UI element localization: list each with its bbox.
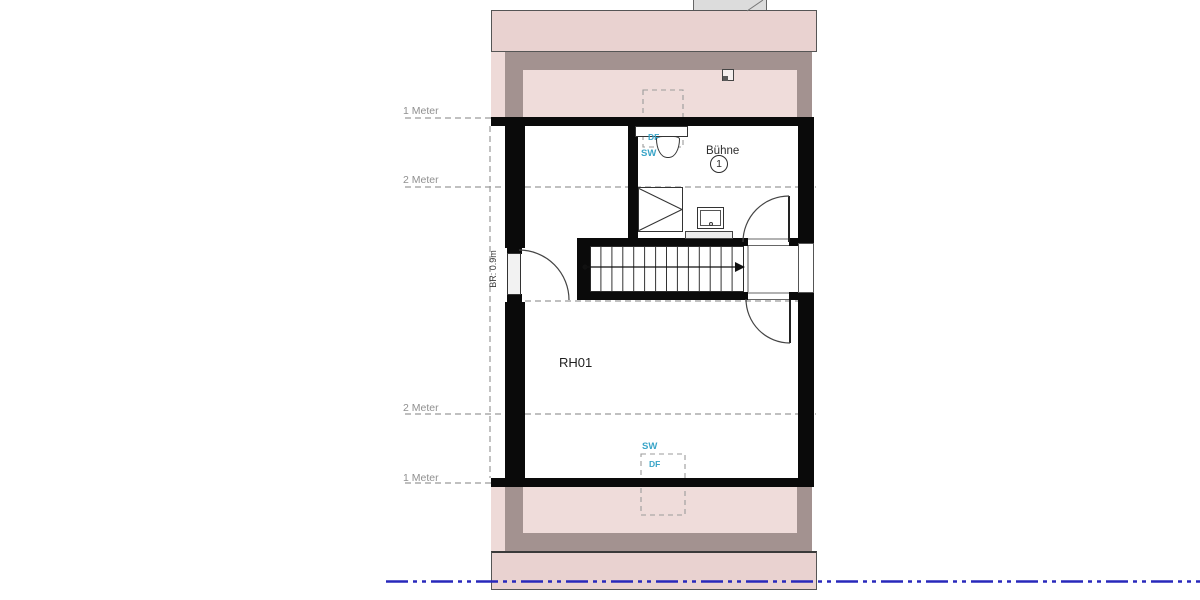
height-line-label-1m-top: 1 Meter [403,106,439,117]
door-left-swing [519,250,569,300]
door-width-label: BR: 0.9m [488,250,498,288]
roof-vent-mark [723,76,728,81]
sink [697,207,724,229]
roof-surface-top [523,70,797,117]
door-openings [748,239,789,300]
shower-tray [638,187,683,232]
door-left-hinge-bottom [507,294,522,302]
window-right [799,244,814,293]
roof-surface-bottom [523,487,797,533]
washstand-counter [685,231,733,239]
wc-bowl [656,136,680,158]
wall-left-upper [505,126,525,248]
skylight-top-sw-label: SW [641,148,656,159]
roof-eave-band-bottom [491,551,817,590]
height-line-label-2m-bottom: 2 Meter [403,403,439,414]
wall-stair-left [577,238,590,300]
skylight-bottom-sw-label: SW [642,441,657,452]
skylight-bottom-df-label: DF [649,459,660,469]
height-line-label-2m-top: 2 Meter [403,175,439,186]
skylight-top-df-label: DF [648,132,659,142]
wall-stair-top [577,238,748,246]
door-upper-right [743,196,789,242]
room-label-rh01: RH01 [559,356,592,369]
wall-bottom [491,478,814,487]
sink-drain [709,222,713,226]
wall-left-lower [505,302,525,478]
wall-right-lower [798,293,814,478]
wall-divider [628,126,638,246]
wall-right-upper [798,126,814,243]
height-line-label-1m-bottom: 1 Meter [403,473,439,484]
roof-vent-icon [722,69,734,81]
staircase [590,246,744,292]
wall-top [491,117,814,126]
wall-stair-bottom [577,292,748,300]
wall-stub-bottom-right [789,292,798,300]
door-lower-right [746,299,790,343]
door-left-leaf [507,253,521,295]
floor-plan-canvas: 1 Meter 2 Meter 2 Meter 1 Meter Bühne 1 … [0,0,1200,600]
roof-eave-band-top [491,10,817,52]
wall-stub-top-right [789,238,798,246]
room-number-badge: 1 [710,155,728,173]
